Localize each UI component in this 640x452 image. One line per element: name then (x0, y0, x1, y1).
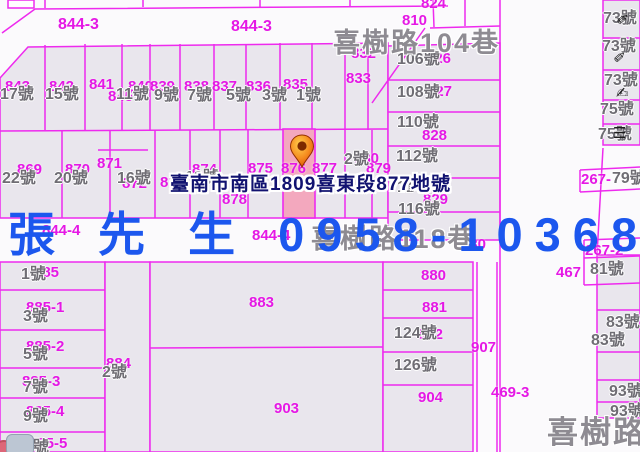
contact-watermark: 張 先 生 0958-103680 (8, 196, 640, 265)
parcel-number-label: 881 (422, 300, 447, 315)
house-number-label: 17號 (0, 87, 34, 103)
house-number-label: 110號 (397, 115, 439, 131)
parcel-number-label: 844-3 (58, 17, 99, 33)
parcel-number-label: 824 (421, 0, 446, 11)
street-name-label: 喜樹路104巷 (333, 30, 500, 57)
house-number-label: 9號 (154, 88, 179, 104)
parcel-number-label: 904 (418, 390, 443, 405)
house-number-label: 7號 (23, 380, 48, 396)
house-number-label: 11號 (116, 87, 149, 103)
map-control-button[interactable] (6, 434, 34, 452)
house-number-label: 16號 (117, 171, 151, 187)
house-number-label: 5號 (226, 88, 251, 104)
cadastral-map[interactable]: 844-3844-3843842841845840839838837836835… (0, 0, 640, 452)
parcel-number-label: 810 (402, 13, 427, 28)
map-pin-icon[interactable] (289, 134, 315, 168)
house-number-label: 9號 (23, 409, 48, 425)
parcel-number-label: 871 (97, 156, 122, 171)
house-number-label: 83號 (591, 333, 625, 349)
house-number-label: 83號 (606, 315, 640, 331)
house-number-label: 1號 (21, 267, 46, 283)
house-number-label: 124號 (394, 326, 437, 342)
parcel-number-label: 880 (421, 268, 446, 283)
house-number-label: 2號 (344, 152, 369, 168)
parcel-number-label: 907 (471, 340, 496, 355)
parcel-number-label: 903 (274, 401, 299, 416)
house-number-label: 93號 (609, 384, 640, 400)
house-number-label: 3號 (262, 88, 287, 104)
parcel-number-label: 844-3 (231, 19, 272, 35)
parcel-number-label: 833 (346, 71, 371, 86)
house-number-label: 112號 (396, 149, 438, 165)
house-number-label: 126號 (394, 358, 437, 374)
house-number-label: 15號 (45, 87, 79, 103)
parcel-tooltip: 臺南市南區1809喜東段877地號 (170, 169, 451, 196)
parcel-number-label: 467 (556, 265, 581, 280)
house-number-label: 1號 (296, 88, 321, 104)
house-number-label: 3號 (23, 309, 48, 325)
house-number-label: 5號 (23, 347, 48, 363)
parcel-number-label: 469-3 (491, 385, 529, 400)
parcel-number-label: 883 (249, 295, 274, 310)
house-number-label: 7號 (187, 88, 212, 104)
house-number-label: 75號 (600, 102, 634, 118)
street-name-label: 喜樹路 (547, 417, 640, 448)
house-number-label: 2號 (102, 365, 127, 381)
writing-hand-icon: ✍ (616, 86, 629, 101)
house-number-label: 108號 (397, 85, 440, 101)
house-number-label: 22號 (2, 171, 36, 187)
house-number-label: 79號 (612, 171, 640, 187)
house-number-label: 20號 (54, 171, 88, 187)
menu-icon: ☰ (613, 126, 626, 141)
parcel-number-label: 267- (581, 172, 611, 187)
